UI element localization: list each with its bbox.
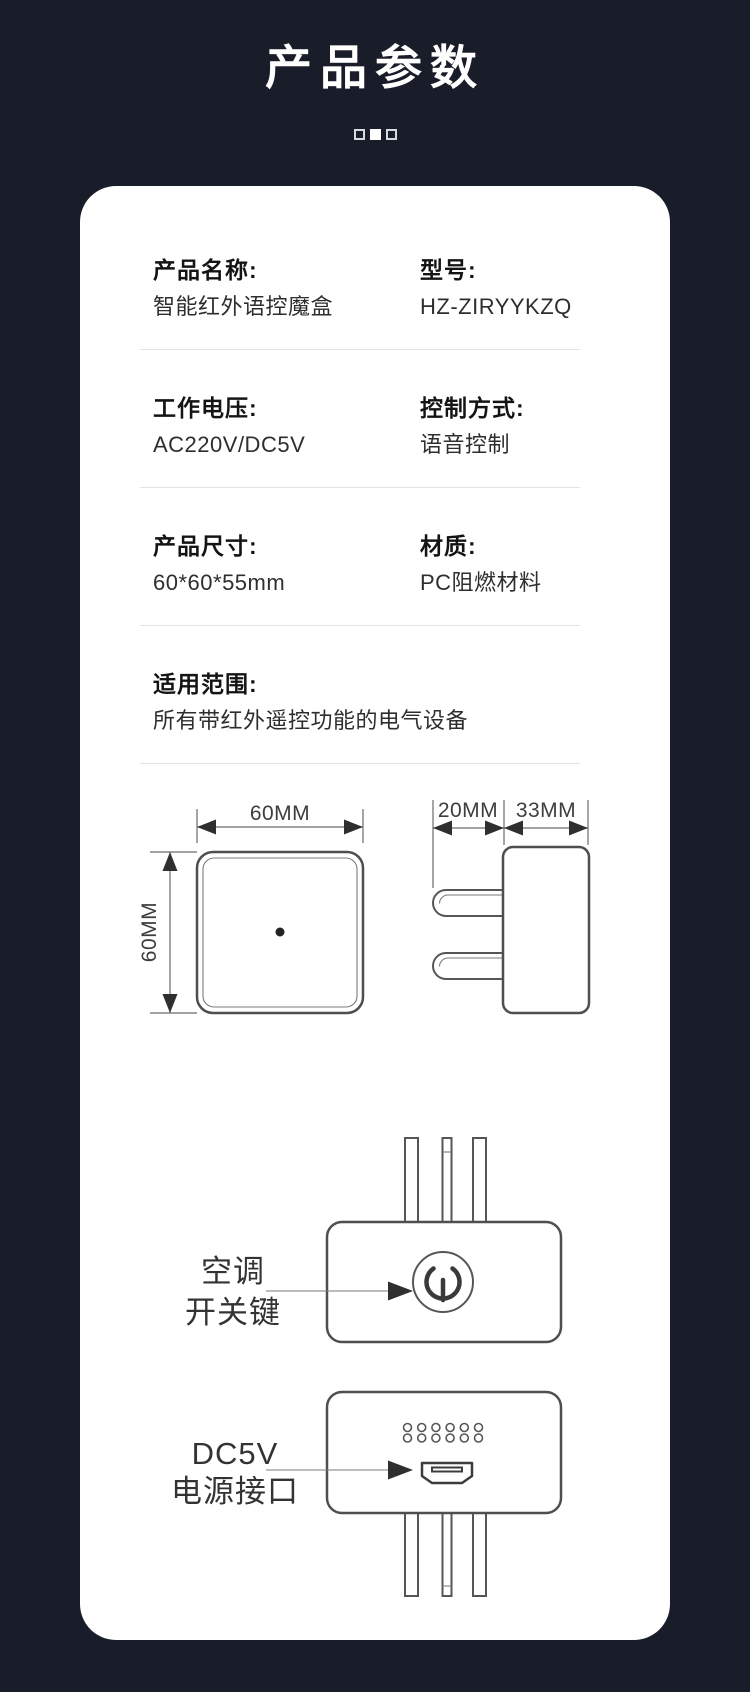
side-view-drawing: 20MM 33MM xyxy=(433,799,589,1013)
usb-port-diagram: DC5V 电源接口 xyxy=(80,1384,670,1598)
page-title: 产品参数 xyxy=(0,40,750,96)
divider xyxy=(140,763,580,764)
divider xyxy=(140,625,580,626)
device-bottom-drawing xyxy=(327,1392,561,1596)
spec-label: 控制方式: xyxy=(420,394,670,422)
spec-value: 所有带红外遥控功能的电气设备 xyxy=(153,708,468,734)
spec-model: 型号: HZ-ZIRYYKZQ xyxy=(420,256,670,320)
callout-arrowhead-icon xyxy=(388,1282,413,1301)
spec-label: 工作电压: xyxy=(153,394,420,422)
pin-depth-label: 20MM xyxy=(438,799,498,822)
height-dimension: 60MM xyxy=(138,852,197,1013)
power-callout: 空调 开关键 xyxy=(185,1254,413,1330)
divider xyxy=(140,349,580,350)
indicator-dot xyxy=(276,928,285,937)
spec-label: 产品尺寸: xyxy=(153,532,420,560)
plug-pin xyxy=(405,1508,418,1596)
spec-label: 材质: xyxy=(420,532,670,560)
page-indicator-dot xyxy=(386,129,397,140)
device-body-side xyxy=(503,847,589,1013)
page-indicator-dot xyxy=(354,129,365,140)
spec-row-size-material: 产品尺寸: 60*60*55mm 材质: PC阻燃材料 xyxy=(80,532,670,596)
spec-row-scope: 适用范围: 所有带红外遥控功能的电气设备 xyxy=(80,670,670,734)
spec-scope: 适用范围: 所有带红外遥控功能的电气设备 xyxy=(153,670,468,734)
spec-material: 材质: PC阻燃材料 xyxy=(420,532,670,596)
divider xyxy=(140,487,580,488)
spec-value: AC220V/DC5V xyxy=(153,432,420,458)
spec-control-method: 控制方式: 语音控制 xyxy=(420,394,670,458)
spec-value: PC阻燃材料 xyxy=(420,570,670,596)
usb-slot xyxy=(432,1468,462,1472)
device-body xyxy=(327,1392,561,1513)
product-spec-page: 产品参数 产品名称: 智能红外语控魔盒 型号: HZ-ZIRYYKZQ 工作电压… xyxy=(0,0,750,1692)
spec-row-voltage-control: 工作电压: AC220V/DC5V 控制方式: 语音控制 xyxy=(80,394,670,458)
device-bottom-drawing xyxy=(327,1138,561,1342)
spec-value: 智能红外语控魔盒 xyxy=(153,294,420,320)
spec-label: 适用范围: xyxy=(153,670,468,698)
plug-pin xyxy=(433,890,506,916)
spec-value: 语音控制 xyxy=(420,432,670,458)
spec-label: 产品名称: xyxy=(153,256,420,284)
spec-label: 型号: xyxy=(420,256,670,284)
spec-value: HZ-ZIRYYKZQ xyxy=(420,294,670,320)
page-indicator xyxy=(0,129,750,140)
spec-voltage: 工作电压: AC220V/DC5V xyxy=(153,394,420,458)
front-view-drawing xyxy=(197,852,363,1013)
height-dimension-label: 60MM xyxy=(138,902,161,962)
width-dimension-label: 60MM xyxy=(250,802,310,825)
power-button xyxy=(413,1252,473,1312)
device-body xyxy=(327,1222,561,1342)
power-button-diagram: 空调 开关键 xyxy=(80,1131,670,1346)
body-depth-label: 33MM xyxy=(516,799,576,822)
dimension-diagram: 60MM 60MM 20MM xyxy=(80,781,670,1026)
spec-size: 产品尺寸: 60*60*55mm xyxy=(153,532,420,596)
power-icon xyxy=(427,1269,460,1299)
usb-callout-line1: DC5V xyxy=(192,1436,279,1471)
micro-usb-port xyxy=(422,1463,472,1483)
usb-callout-line2: 电源接口 xyxy=(171,1474,299,1509)
usb-callout: DC5V 电源接口 xyxy=(171,1436,413,1509)
callout-arrowhead-icon xyxy=(388,1461,413,1480)
spec-value: 60*60*55mm xyxy=(153,570,420,596)
speaker-holes xyxy=(404,1424,483,1443)
power-callout-line1: 空调 xyxy=(201,1254,265,1289)
power-callout-line2: 开关键 xyxy=(185,1295,281,1330)
spec-product-name: 产品名称: 智能红外语控魔盒 xyxy=(153,256,420,320)
plug-pin xyxy=(443,1508,452,1596)
plug-pin xyxy=(433,953,506,979)
plug-pin xyxy=(405,1138,418,1226)
width-dimension: 60MM xyxy=(197,802,363,843)
spec-row-name-model: 产品名称: 智能红外语控魔盒 型号: HZ-ZIRYYKZQ xyxy=(80,186,670,320)
plug-pin xyxy=(473,1138,486,1226)
plug-pin xyxy=(443,1138,452,1226)
spec-card: 产品名称: 智能红外语控魔盒 型号: HZ-ZIRYYKZQ 工作电压: AC2… xyxy=(80,186,670,1640)
plug-pin xyxy=(473,1508,486,1596)
page-indicator-dot-active xyxy=(370,129,381,140)
